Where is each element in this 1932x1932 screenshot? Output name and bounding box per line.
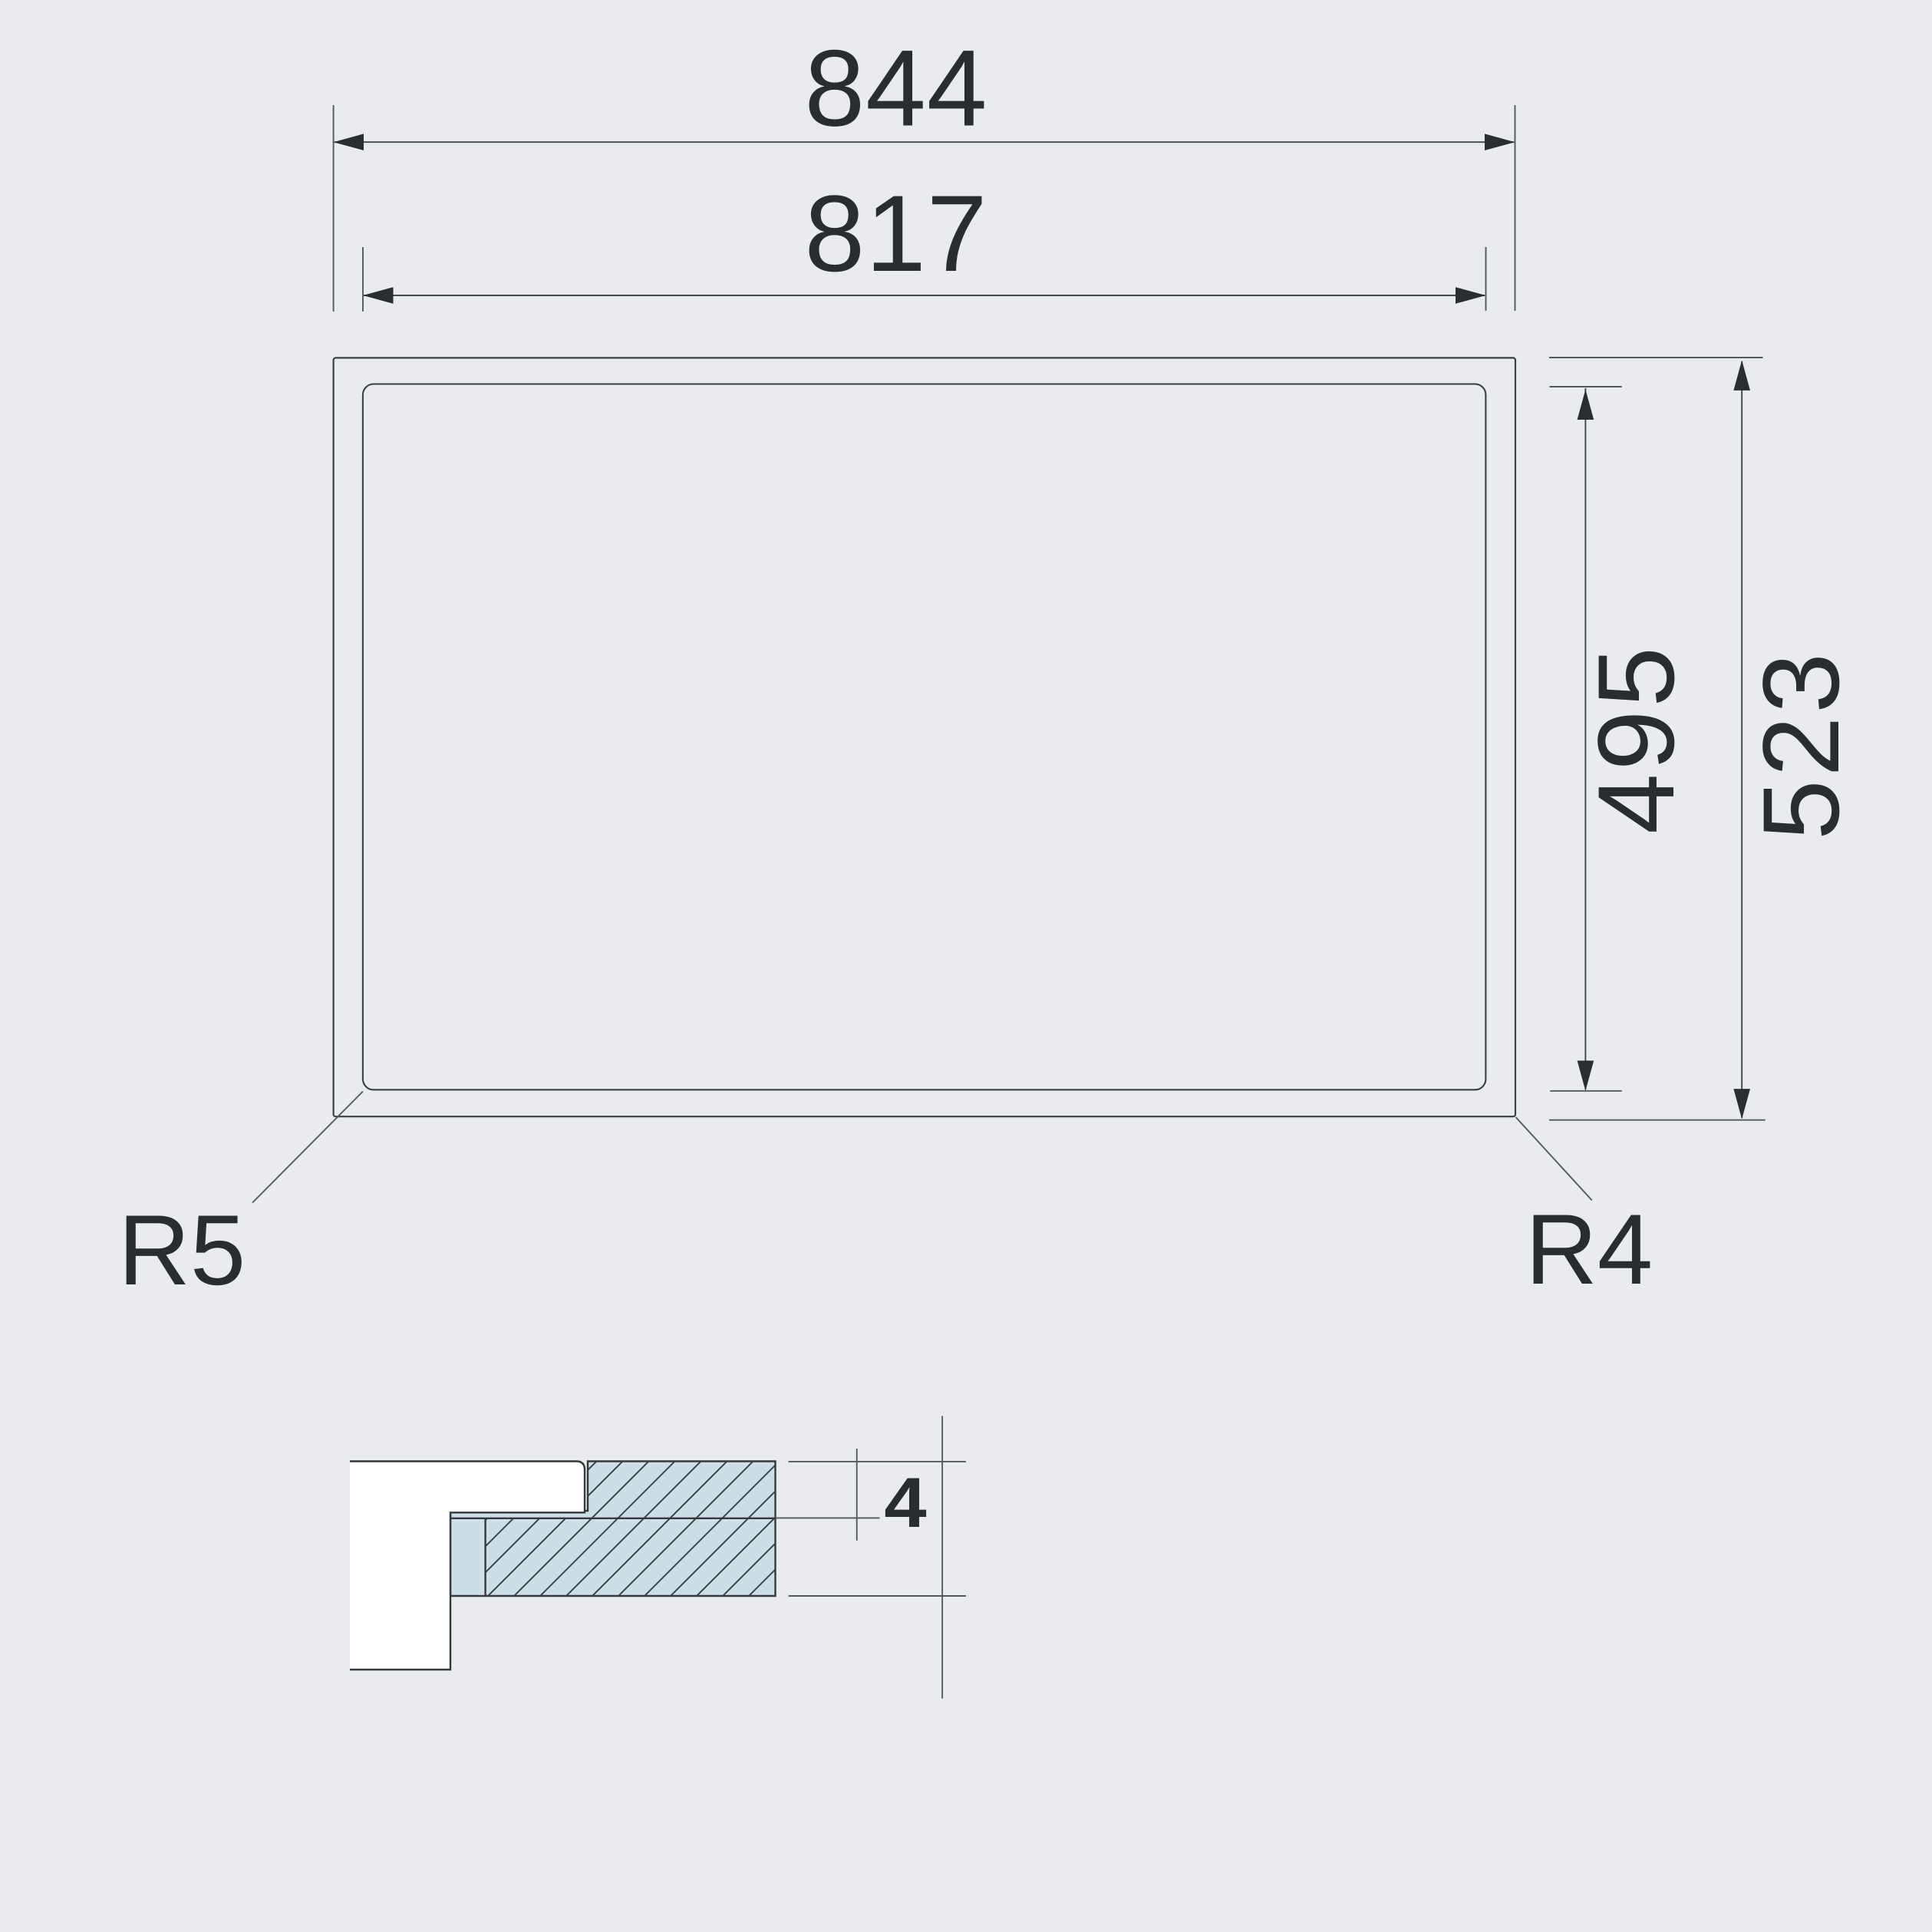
svg-text:495: 495 — [1575, 644, 1696, 834]
svg-text:R4: R4 — [1525, 1193, 1653, 1305]
svg-text:523: 523 — [1740, 650, 1861, 840]
svg-text:844: 844 — [804, 28, 987, 149]
svg-text:4: 4 — [884, 1463, 926, 1542]
svg-text:817: 817 — [804, 173, 987, 294]
svg-text:R5: R5 — [118, 1194, 246, 1306]
